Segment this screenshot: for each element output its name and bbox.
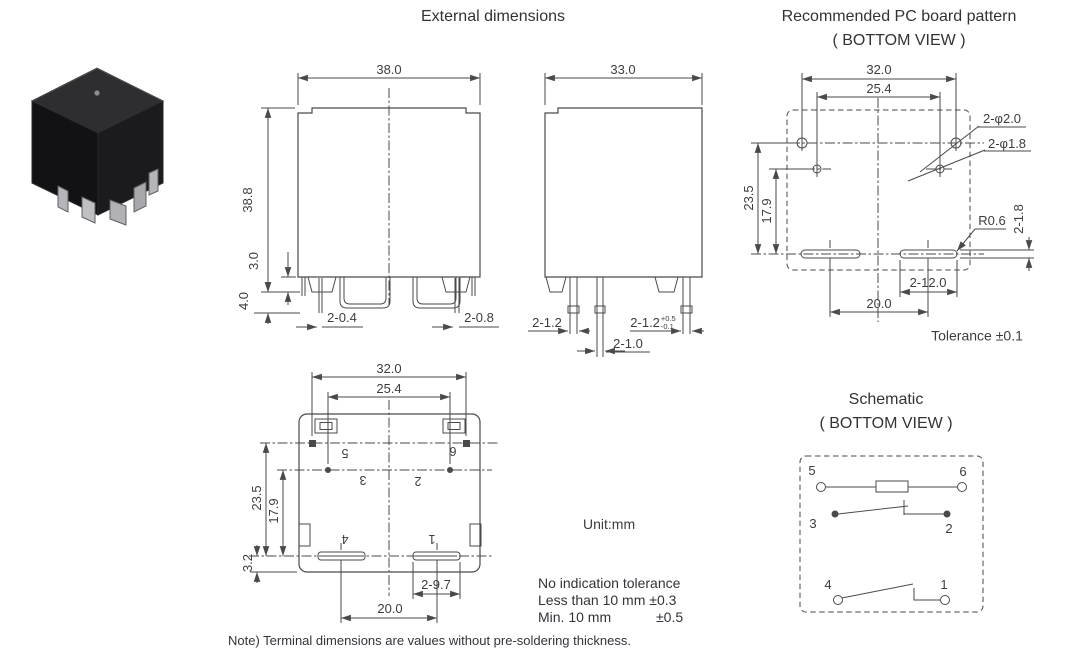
- schematic-pin6-label: 6: [959, 465, 966, 479]
- no-contact-blade: [842, 584, 913, 598]
- schematic-pin3-label: 3: [809, 517, 816, 531]
- relay-datasheet-page: External dimensions Recommended PC board…: [0, 0, 1067, 660]
- bottom-pin4-number: 4: [342, 531, 349, 545]
- schematic-pin5-label: 5: [808, 464, 815, 478]
- schematic-pin6-circle: [958, 483, 967, 492]
- nc-contact-blade: [838, 506, 908, 514]
- dim-side-pin-a: 2-1.2: [532, 316, 562, 330]
- bottom-pin2-number: 2: [415, 473, 422, 487]
- photo-top-vent-dot: [94, 90, 99, 95]
- dim-pcb-holes-b: 2-φ1.8: [988, 137, 1026, 151]
- tolerance-note-line1: No indication tolerance: [538, 576, 680, 591]
- dim-front-height: 38.8: [241, 187, 255, 212]
- dim-side-pin-b: 2-1.2 +0.5 -0.1: [630, 315, 675, 331]
- dim-side-pin-b-tolerance: +0.5 -0.1: [661, 315, 676, 331]
- schematic-pin2-label: 2: [945, 522, 952, 536]
- dim-side-pin-b-value: 2-1.2: [630, 316, 660, 330]
- dim-pcb-height1: 23.5: [742, 185, 756, 210]
- dim-pcb-width2: 25.4: [866, 82, 891, 96]
- unit-note: Unit:mm: [583, 517, 635, 532]
- schematic-pin2-dot: [944, 511, 951, 518]
- dim-front-standoff: 3.0: [247, 252, 261, 270]
- dim-bottom-width1: 32.0: [376, 362, 401, 376]
- dim-bottom-terminal: 2-9.7: [421, 578, 451, 592]
- dim-pcb-width1: 32.0: [866, 63, 891, 77]
- dim-front-pin-b: 2-0.8: [464, 311, 494, 325]
- pcb-pattern-title: Recommended PC board pattern: [782, 8, 1017, 26]
- dim-front-pin-a: 2-0.4: [327, 311, 357, 325]
- schematic-pin4-circle: [834, 596, 843, 605]
- schematic-pin5-circle: [817, 483, 826, 492]
- bottom-pin1-number: 1: [429, 531, 436, 545]
- footnote: Note) Terminal dimensions are values wit…: [228, 634, 631, 648]
- dim-pcb-slot-height: 2-1.8: [1012, 204, 1026, 234]
- bottom-pin5-number: 5: [342, 445, 349, 459]
- bottom-pin6-number: 6: [450, 443, 457, 457]
- coil-symbol: [876, 481, 908, 492]
- relay-photo: [32, 68, 163, 225]
- schematic-title: Schematic: [849, 391, 924, 409]
- tolerance-note-line2: Less than 10 mm ±0.3: [538, 593, 676, 608]
- dim-pcb-span: 20.0: [866, 297, 891, 311]
- schematic-pin1-circle: [941, 596, 950, 605]
- dim-pcb-slot-width: 2-12.0: [910, 276, 947, 290]
- dim-side-width: 33.0: [610, 63, 635, 77]
- front-view-drawing: [254, 73, 499, 327]
- schematic-pin4-label: 4: [824, 578, 831, 592]
- tolerance-note-line3-value: ±0.5: [656, 610, 683, 625]
- pcb-pattern-subtitle: ( BOTTOM VIEW ): [832, 32, 965, 50]
- schematic-subtitle: ( BOTTOM VIEW ): [819, 415, 952, 433]
- dim-bottom-height1: 23.5: [250, 485, 264, 510]
- dim-bottom-width2: 25.4: [376, 382, 401, 396]
- dim-side-pin-c: 2-1.0: [613, 337, 643, 351]
- schematic-pin3-dot: [832, 511, 839, 518]
- dim-front-pin-length: 4.0: [237, 292, 251, 310]
- bottom-view-drawing: [249, 372, 500, 623]
- dim-pcb-height2: 17.9: [760, 198, 774, 223]
- dim-pcb-holes-a: 2-φ2.0: [983, 112, 1021, 126]
- dim-front-width: 38.0: [376, 63, 401, 77]
- external-dimensions-title: External dimensions: [421, 8, 565, 26]
- dim-bottom-height3: 3.2: [241, 554, 255, 572]
- dim-bottom-height2: 17.9: [267, 498, 281, 523]
- bottom-pin3-number: 3: [360, 472, 367, 486]
- tolerance-note-line3: Min. 10 mm: [538, 610, 611, 625]
- pcb-tolerance-note: Tolerance ±0.1: [931, 328, 1023, 343]
- dim-pcb-radius: R0.6: [978, 214, 1005, 228]
- dim-bottom-span: 20.0: [377, 602, 402, 616]
- schematic-pin1-label: 1: [940, 578, 947, 592]
